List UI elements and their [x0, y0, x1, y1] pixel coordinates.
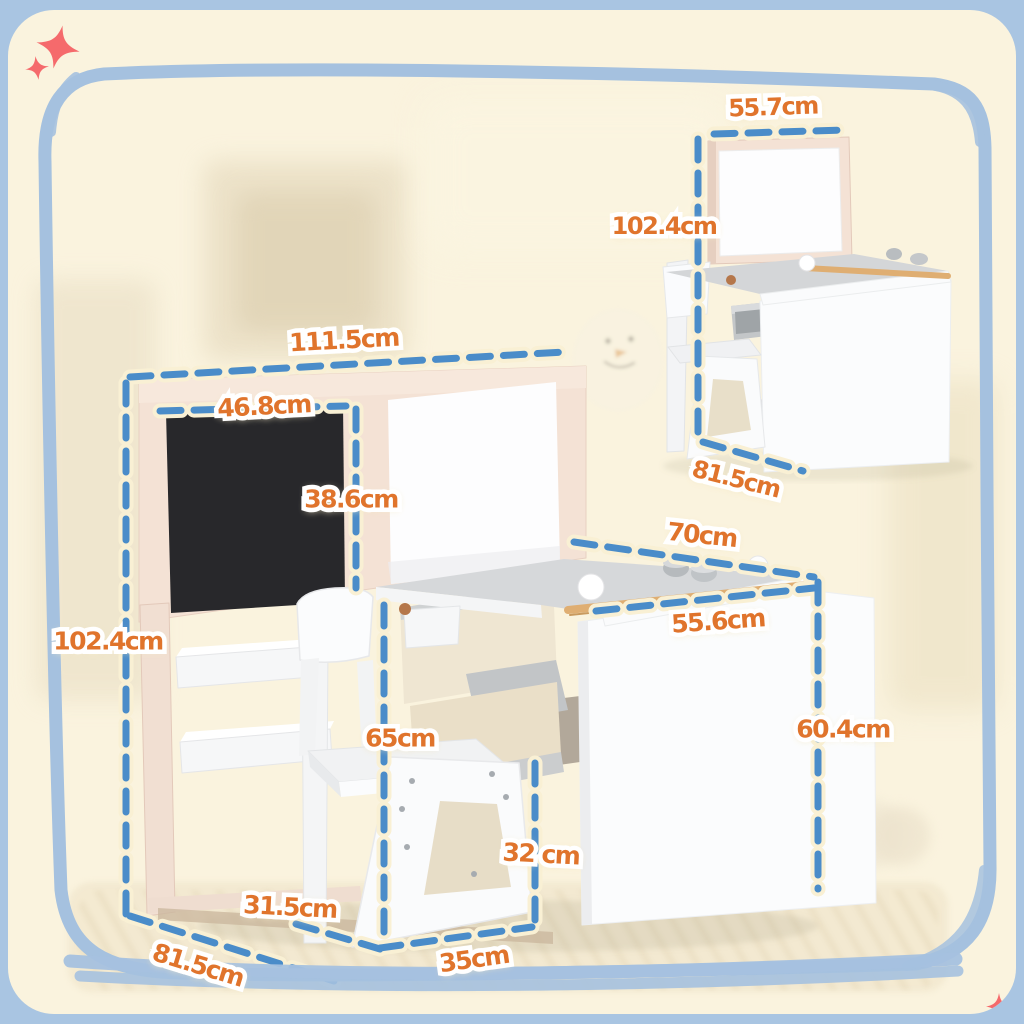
- dim-label-inset-width: 55.7cm: [728, 91, 818, 122]
- dim-label-board-width: 46.8cm: [217, 389, 312, 423]
- inset-cup: [910, 253, 928, 265]
- dim-label-chair-height: 65cm: [365, 724, 435, 753]
- inset-ball: [799, 255, 815, 271]
- dim-line-inset-width: [714, 130, 844, 134]
- wood-knob: [399, 603, 411, 615]
- ball: [578, 574, 604, 600]
- chair-backrest: [297, 588, 373, 663]
- dim-label-main-height: 102.4cm: [53, 627, 162, 656]
- cream-card: 111.5cm 46.8cm 38.6cm 102.4cm 70cm 55.6c…: [8, 10, 1016, 1014]
- sparkle-icon: [23, 54, 50, 81]
- dim-label-seat-height: 32 cm: [502, 838, 580, 871]
- inset-whiteboard: [719, 148, 842, 256]
- dim-label-inset-height: 102.4cm: [612, 212, 717, 240]
- inset-cup: [886, 248, 902, 260]
- dim-label-main-width: 111.5cm: [289, 323, 400, 358]
- sparkle-icon: [986, 993, 1012, 1014]
- inset-desk-body: [760, 280, 951, 472]
- dim-label-desk-height: 60.4cm: [796, 715, 890, 744]
- inset-unit-illustration: [663, 137, 951, 472]
- dim-label-board-height: 38.6cm: [304, 485, 398, 514]
- desk-body: [578, 590, 876, 925]
- dim-label-chair-depth: 31.5cm: [243, 890, 338, 924]
- dimension-diagram: 111.5cm 46.8cm 38.6cm 102.4cm 70cm 55.6c…: [0, 0, 1024, 1024]
